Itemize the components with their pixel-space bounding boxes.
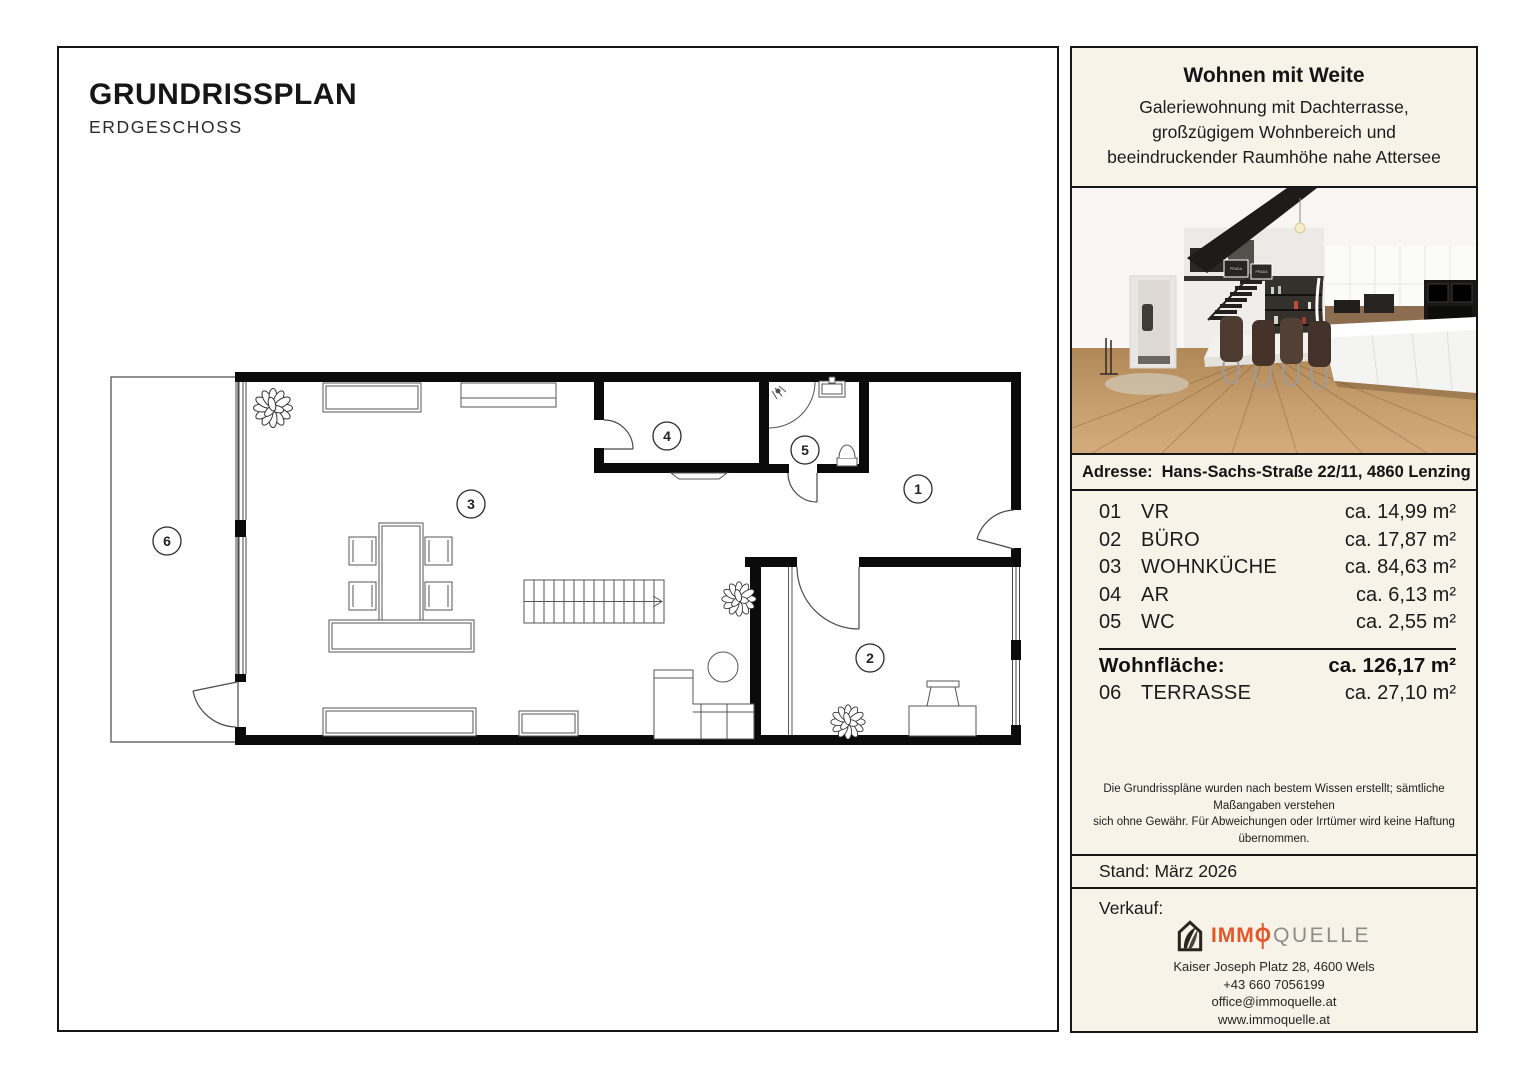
room-name: AR <box>1141 584 1356 607</box>
floorplan-box: GRUNDRISSPLAN ERDGESCHOSS <box>57 46 1059 1032</box>
sofa <box>654 670 754 739</box>
info-panel: Wohnen mit Weite Galeriewohnung mit Dach… <box>1070 46 1478 1033</box>
room-name: WOHNKÜCHE <box>1141 556 1345 579</box>
staircase <box>524 580 664 623</box>
kitchen-cabinets <box>1325 246 1476 326</box>
listing-subtitle-line2: großzügigem Wohnbereich und <box>1152 120 1396 145</box>
verkauf-label: Verkauf: <box>1072 898 1476 919</box>
disclaimer: Die Grundrisspläne wurden nach bestem Wi… <box>1072 781 1476 847</box>
room-table: 01 VR ca. 14,99 m² 02 BÜRO ca. 17,87 m² … <box>1072 491 1476 854</box>
room-area: ca. 6,13 m² <box>1356 584 1456 607</box>
contact-website: www.immoquelle.at <box>1072 1011 1476 1029</box>
table-row: 03 WOHNKÜCHE ca. 84,63 m² <box>1072 556 1476 584</box>
room-label-5: 5 <box>801 442 809 458</box>
room-area: ca. 2,55 m² <box>1356 611 1456 634</box>
verkauf-section: Verkauf: IMMOQUELLE Kaiser Joseph Platz … <box>1072 889 1476 1031</box>
room-name: BÜRO <box>1141 529 1345 552</box>
contact-email: office@immoquelle.at <box>1072 993 1476 1011</box>
side-table <box>708 652 738 682</box>
contact-block: Kaiser Joseph Platz 28, 4600 Wels +43 66… <box>1072 958 1476 1028</box>
microwave <box>1334 300 1360 313</box>
room-number: 03 <box>1099 556 1141 579</box>
room-label-2: 2 <box>866 650 874 666</box>
room-area: ca. 17,87 m² <box>1345 529 1456 552</box>
address-bar: Adresse: Hans-Sachs-Straße 22/11, 4860 L… <box>1072 455 1476 491</box>
contact-address: Kaiser Joseph Platz 28, 4600 Wels <box>1072 958 1476 976</box>
office-furniture <box>909 681 976 736</box>
table-row: 04 AR ca. 6,13 m² <box>1072 584 1476 612</box>
disclaimer-line2: sich ohne Gewähr. Für Abweichungen oder … <box>1072 814 1476 847</box>
room-area: ca. 84,63 m² <box>1345 556 1456 579</box>
total-value: ca. 126,17 m² <box>1328 654 1456 678</box>
desk <box>909 706 976 736</box>
interior-photo: PRADA PRADA <box>1072 188 1476 455</box>
room-number: 04 <box>1099 584 1141 607</box>
listing-subtitle-line1: Galeriewohnung mit Dachterrasse, <box>1139 95 1408 120</box>
table-row: 06 TERRASSE ca. 27,10 m² <box>1072 682 1476 710</box>
tv-sideboard <box>671 473 727 479</box>
room-area: ca. 27,10 m² <box>1345 682 1456 705</box>
total-label: Wohnfläche: <box>1099 654 1328 678</box>
brand-wordmark: IMMOQUELLE <box>1211 924 1371 948</box>
listing-title: Wohnen mit Weite <box>1183 64 1364 88</box>
brand-o: O <box>1255 924 1271 948</box>
rug <box>1105 373 1189 395</box>
total-row: Wohnfläche: ca. 126,17 m² <box>1072 650 1476 682</box>
table-row: 02 BÜRO ca. 17,87 m² <box>1072 529 1476 557</box>
room-number: 01 <box>1099 501 1141 524</box>
page-subtitle: ERDGESCHOSS <box>89 117 357 138</box>
terrace-outline <box>111 377 238 742</box>
room-number: 02 <box>1099 529 1141 552</box>
desk-chair <box>927 681 959 687</box>
table-row: 01 VR ca. 14,99 m² <box>1072 501 1476 529</box>
interior-photo-illustration: PRADA PRADA <box>1072 188 1476 453</box>
page-title: GRUNDRISSPLAN <box>89 78 357 112</box>
room-area: ca. 14,99 m² <box>1345 501 1456 524</box>
house-logo-icon <box>1177 920 1203 952</box>
hallway-doorway <box>1130 276 1176 368</box>
room-number: 06 <box>1099 682 1141 705</box>
entry-door <box>977 539 1014 549</box>
room-label-3: 3 <box>467 496 475 512</box>
sign-label: PRADA <box>1230 267 1243 271</box>
glass-partition-room2 <box>789 567 793 735</box>
room-label-6: 6 <box>163 533 171 549</box>
disclaimer-line1: Die Grundrisspläne wurden nach bestem Wi… <box>1072 781 1476 814</box>
floor-plan-drawing: 1 2 3 4 5 6 <box>59 48 1057 1030</box>
room-name: TERRASSE <box>1141 682 1345 705</box>
brand-row: IMMOQUELLE <box>1072 920 1476 952</box>
table-row: 05 WC ca. 2,55 m² <box>1072 611 1476 639</box>
address-value: Hans-Sachs-Straße 22/11, 4860 Lenzing <box>1162 463 1471 482</box>
listing-header: Wohnen mit Weite Galeriewohnung mit Dach… <box>1072 48 1476 188</box>
room-name: WC <box>1141 611 1356 634</box>
stand-row: Stand: März 2026 <box>1072 854 1476 889</box>
toilet <box>837 458 857 466</box>
room-labels: 1 2 3 4 5 6 <box>153 422 932 672</box>
brand-immo: IMM <box>1211 924 1255 948</box>
room-label-1: 1 <box>914 481 922 497</box>
room-label-4: 4 <box>663 428 671 444</box>
counter-appliance <box>1364 294 1394 313</box>
terrace-door <box>193 682 237 691</box>
plan-title-block: GRUNDRISSPLAN ERDGESCHOSS <box>89 78 357 138</box>
room-name: VR <box>1141 501 1345 524</box>
contact-phone: +43 660 7056199 <box>1072 976 1476 994</box>
listing-subtitle-line3: beeindruckender Raumhöhe nahe Attersee <box>1107 145 1441 170</box>
brand-quelle: QUELLE <box>1273 924 1371 948</box>
room-number: 05 <box>1099 611 1141 634</box>
stand-text: Stand: März 2026 <box>1099 861 1237 882</box>
sign-label: PRADA <box>1255 270 1268 274</box>
address-label: Adresse: <box>1082 463 1153 482</box>
